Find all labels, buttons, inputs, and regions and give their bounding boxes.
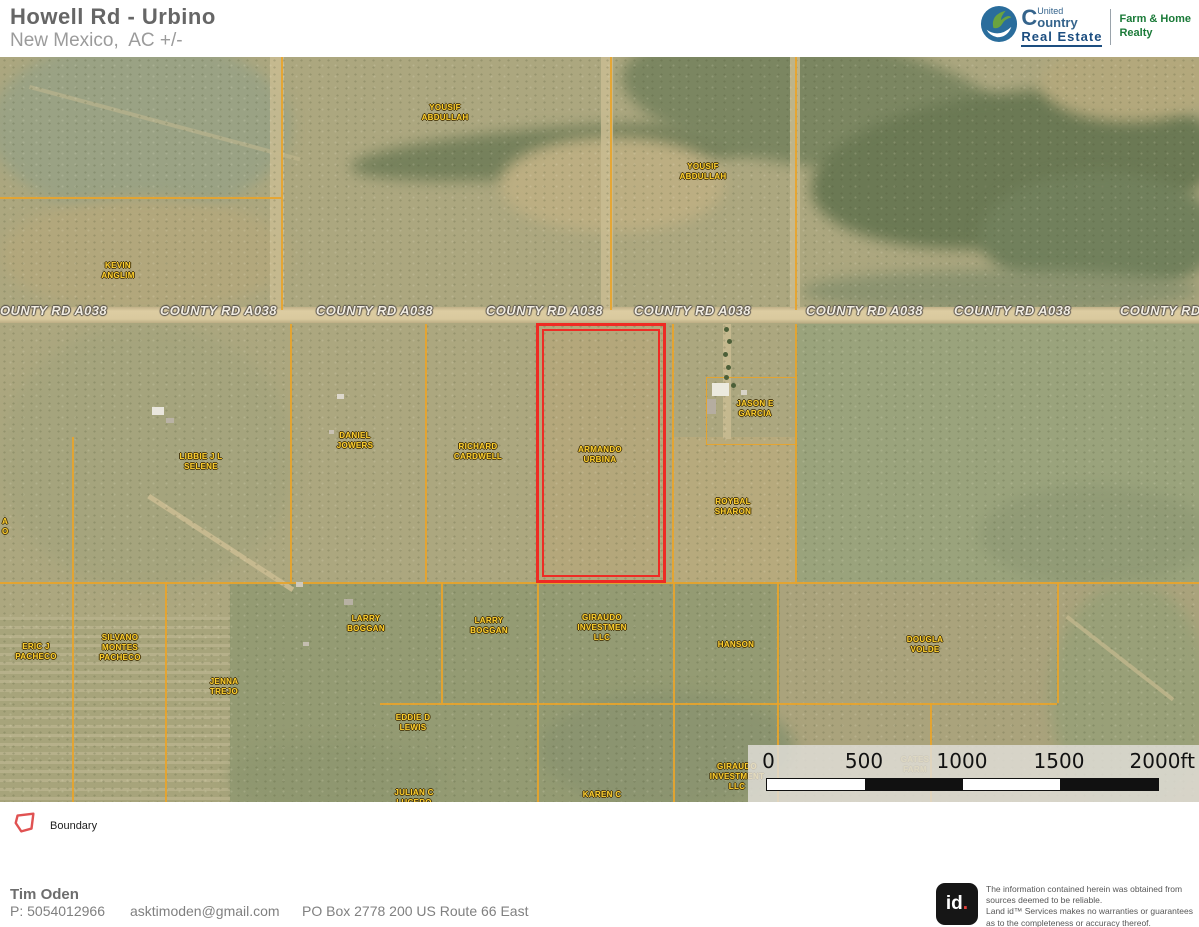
land-id-logo: id. bbox=[936, 883, 978, 925]
parcel-owner-label: KAREN C bbox=[583, 790, 622, 800]
building bbox=[344, 599, 353, 605]
road-label: COUNTY RD A038 bbox=[806, 303, 923, 318]
parcel-owner-label: LARRYBOGGAN bbox=[347, 614, 385, 634]
agent-address: PO Box 2778 200 US Route 66 East bbox=[302, 903, 528, 919]
brand-name-rest: ountry bbox=[1037, 16, 1077, 29]
scale-segment bbox=[963, 779, 1061, 790]
parcel-owner-label: EDDIE DLEWIS bbox=[396, 713, 431, 733]
subject-property-boundary-inner bbox=[542, 329, 660, 577]
building bbox=[166, 418, 174, 423]
agent-name: Tim Oden bbox=[10, 886, 79, 903]
disclaimer-text: The information contained herein was obt… bbox=[986, 884, 1198, 927]
building bbox=[303, 642, 309, 646]
building bbox=[296, 582, 303, 587]
scale-segment bbox=[767, 779, 865, 790]
boundary-polygon-icon bbox=[12, 810, 38, 841]
united-country-logo: C United ountry Real Estate bbox=[980, 5, 1102, 48]
road-label: COUNTY RD bbox=[1120, 303, 1199, 318]
legend: Boundary bbox=[12, 810, 97, 841]
tree bbox=[727, 339, 732, 344]
land-listing-flyer: Howell Rd - Urbino New Mexico, AC +/- C … bbox=[0, 0, 1199, 927]
legend-boundary-label: Boundary bbox=[50, 820, 97, 832]
scale-segment bbox=[865, 779, 963, 790]
parcel-owner-label: KEVINANGLIM bbox=[101, 261, 134, 281]
parcel-owner-label: YOUSIFABDULLAH bbox=[680, 162, 727, 182]
agent-email: asktimoden@gmail.com bbox=[130, 903, 280, 919]
tree bbox=[731, 383, 736, 388]
road-label: COUNTY RD A038 bbox=[634, 303, 751, 318]
parcel-owner-label: JASON EGARCIA bbox=[736, 399, 773, 419]
tree bbox=[724, 375, 729, 380]
scale-tick-label: 0 bbox=[762, 749, 775, 773]
scale-tick-label: 500 bbox=[845, 749, 883, 773]
parcel-owner-label: AO bbox=[2, 517, 9, 537]
parcel-owner-label: YOUSIFABDULLAH bbox=[422, 103, 469, 123]
building bbox=[152, 407, 164, 415]
brand-tagline: Real Estate bbox=[1021, 29, 1102, 47]
road-label: COUNTY RD A038 bbox=[316, 303, 433, 318]
parcel-owner-label: HANSON bbox=[718, 640, 754, 650]
map-canvas[interactable]: OUNTY RD A038COUNTY RD A038COUNTY RD A03… bbox=[0, 57, 1199, 802]
road-label: COUNTY RD A038 bbox=[954, 303, 1071, 318]
parcel-owner-label: DOUGLAVOLDE bbox=[907, 635, 943, 655]
road-label: COUNTY RD A038 bbox=[486, 303, 603, 318]
parcel-owner-label: RICHARDCARDWELL bbox=[454, 442, 502, 462]
building bbox=[329, 430, 334, 434]
road-label: OUNTY RD A038 bbox=[0, 303, 107, 318]
parcel-owner-label: ROYBALSHARON bbox=[715, 497, 751, 517]
parcel-owner-label: LARRYBOGGAN bbox=[470, 616, 508, 636]
parcel-owner-label: SILVANOMONTESPACHECO bbox=[99, 633, 141, 663]
page-subtitle: New Mexico, AC +/- bbox=[10, 30, 183, 52]
road-label: COUNTY RD A038 bbox=[160, 303, 277, 318]
tree bbox=[726, 365, 731, 370]
scale-tick-label: 1000 bbox=[937, 749, 988, 773]
building bbox=[707, 399, 716, 414]
parcel-owner-label: ERIC JPACHECO bbox=[15, 642, 57, 662]
brand-logos: C United ountry Real Estate Farm & Home … bbox=[980, 5, 1191, 48]
brand-initial: C bbox=[1021, 7, 1037, 29]
united-country-globe-icon bbox=[980, 5, 1018, 48]
building bbox=[712, 383, 729, 396]
parcel-owner-label: LIBBIE J LSELENE bbox=[179, 452, 222, 472]
agent-phone: P: 5054012966 bbox=[10, 903, 105, 919]
brand-divider bbox=[1110, 9, 1111, 45]
parcel-owner-label: JULIAN CLUCERO bbox=[394, 788, 433, 802]
farm-home-realty-logo: Farm & Home Realty bbox=[1119, 13, 1191, 39]
scale-tick-label: 2000ft bbox=[1130, 749, 1195, 773]
parcel-owner-label: JENNATREJO bbox=[210, 677, 239, 697]
scale-tick-label: 1500 bbox=[1034, 749, 1085, 773]
scale-bar: 0500100015002000ft bbox=[748, 745, 1199, 802]
parcel-owner-label: DANIELJOWERS bbox=[337, 431, 373, 451]
scale-segment bbox=[1060, 779, 1158, 790]
building bbox=[741, 390, 747, 395]
scale-bar-segments bbox=[766, 778, 1159, 791]
tree bbox=[723, 352, 728, 357]
tree bbox=[724, 327, 729, 332]
building bbox=[337, 394, 344, 399]
parcel-owner-label: GIRAUDOINVESTMENLLC bbox=[577, 613, 626, 643]
page-title: Howell Rd - Urbino bbox=[10, 4, 216, 30]
subject-property-boundary[interactable] bbox=[536, 323, 666, 583]
